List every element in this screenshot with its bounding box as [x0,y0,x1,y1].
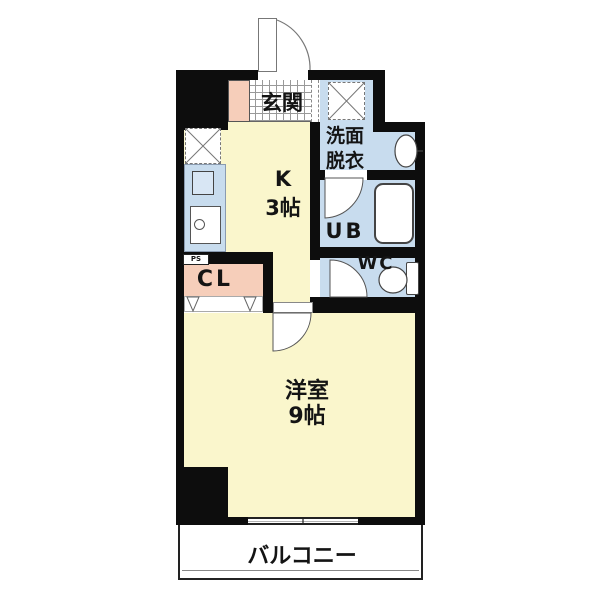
toilet-label: WC [352,253,400,274]
refrigerator-space-icon [185,128,221,164]
stove-icon [192,171,214,195]
wall-left [176,70,184,470]
bathtub-icon [374,183,414,244]
kitchen-label-letter: K [251,165,315,194]
wall-toilet-bottom [310,297,425,313]
balcony-window-icon [248,517,358,525]
wall-step-top-right [373,70,385,130]
wall-closet-right [263,252,273,313]
floorplan-canvas: 玄関 洗面 脱衣 UB WC K 3帖 CL PS 洋室 9帖 バルコニー [0,0,600,600]
main-room-size-label: 9帖 [247,404,367,429]
wall-bottom-left [176,517,248,525]
wall-pillar-bottom-left [176,467,228,523]
washroom-label-line1: 洗面 [317,124,373,149]
wall-notch [373,122,425,132]
entrance-door-icon [258,18,277,72]
wall-washroom-bath-right [367,170,425,180]
unit-bath-label: UB [320,219,370,243]
closet-folding-door-icon [184,296,263,312]
pipe-space-label: PS [183,254,209,265]
main-room-label: 洋室 9帖 [247,379,367,429]
balcony-rail-line [182,570,419,571]
wall-right [415,122,425,525]
genkan-label: 玄関 [250,87,314,117]
balcony-label: バルコニー [217,538,387,570]
closet-label: CL [186,267,244,292]
shoe-cabinet [228,80,250,122]
kitchen-label: K 3帖 [251,165,315,223]
washing-machine-space-icon [328,82,365,120]
kitchen-size-label: 3帖 [251,194,315,223]
washroom-label: 洗面 脱衣 [317,124,373,174]
toilet-tank-icon [406,262,419,295]
toilet-door-opening [310,260,320,297]
kitchen-sink-drain-icon [194,219,205,230]
main-room-door-opening [273,302,313,313]
entrance-door-swing-icon [277,20,310,70]
main-room-name-label: 洋室 [247,379,367,404]
washroom-label-line2: 脱衣 [317,149,373,174]
